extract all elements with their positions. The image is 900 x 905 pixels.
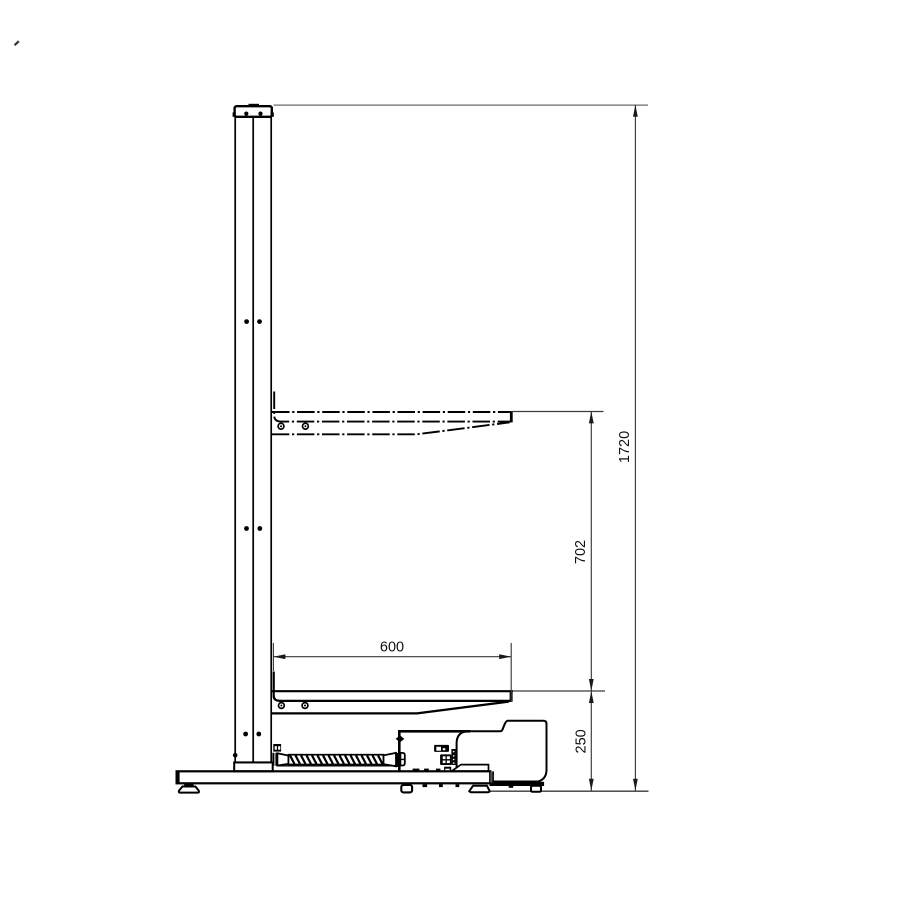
- svg-text:250: 250: [574, 729, 590, 753]
- svg-text:702: 702: [573, 540, 589, 564]
- svg-text:1720: 1720: [617, 431, 633, 463]
- svg-text:600: 600: [380, 639, 404, 655]
